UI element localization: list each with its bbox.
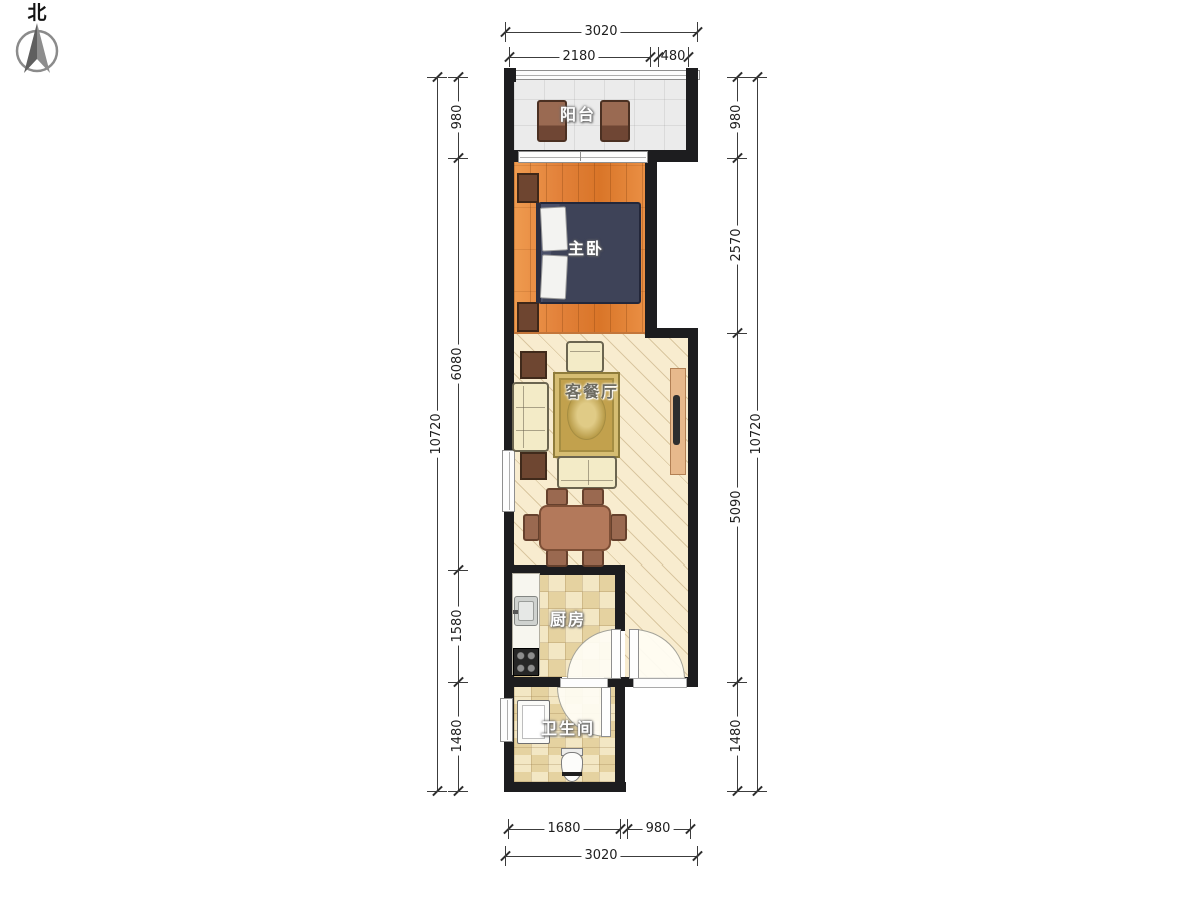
dim-right-living: 5090 bbox=[730, 487, 744, 526]
nightstand bbox=[517, 302, 539, 332]
floor-transition bbox=[514, 332, 645, 334]
wall-bedroom-right bbox=[645, 150, 657, 338]
dim-left-balcony: 980 bbox=[451, 102, 465, 133]
sofa-back-line bbox=[523, 386, 524, 448]
dim-extension bbox=[509, 47, 510, 67]
room-label-kitchen: 厨房 bbox=[550, 606, 586, 630]
tv bbox=[673, 395, 680, 445]
kitchen-sink bbox=[514, 596, 538, 626]
north-compass-icon: 北 bbox=[10, 2, 64, 80]
dining-chair bbox=[523, 514, 540, 541]
dim-left-total: 10720 bbox=[430, 410, 444, 457]
dim-extension bbox=[427, 77, 447, 78]
dim-line-right-inner bbox=[737, 77, 738, 791]
dim-extension bbox=[505, 846, 506, 866]
loveseat-back-line bbox=[561, 480, 613, 481]
dim-extension bbox=[688, 47, 689, 67]
wall-bath-top bbox=[504, 677, 562, 687]
dim-extension bbox=[448, 570, 468, 571]
dim-extension bbox=[448, 158, 468, 159]
bathroom-window bbox=[500, 698, 513, 742]
sofa bbox=[512, 382, 549, 452]
north-label: 北 bbox=[27, 2, 46, 24]
dim-extension bbox=[727, 333, 747, 334]
dim-right-bathroom: 1480 bbox=[730, 716, 744, 755]
dim-line-left-inner bbox=[458, 77, 459, 791]
dim-extension bbox=[727, 682, 747, 683]
dim-top-total: 3020 bbox=[581, 25, 620, 39]
dim-extension bbox=[448, 77, 468, 78]
dim-bottom-bath-width: 1680 bbox=[544, 822, 583, 836]
pillow bbox=[540, 206, 568, 251]
dim-bottom-entry-width: 980 bbox=[643, 822, 674, 836]
dim-extension bbox=[727, 791, 747, 792]
dim-extension bbox=[620, 819, 621, 839]
toilet-seat-band bbox=[562, 772, 582, 776]
loveseat-cushion-line bbox=[588, 460, 589, 485]
dim-extension bbox=[505, 22, 506, 42]
balcony-sliding-door bbox=[518, 151, 648, 163]
floor-plan: 北 bbox=[0, 0, 1200, 900]
sofa-cushion-line bbox=[516, 430, 545, 431]
dim-top-bedroom-width: 2180 bbox=[559, 50, 598, 64]
armchair bbox=[566, 341, 604, 373]
entry-threshold bbox=[633, 678, 687, 688]
stove bbox=[513, 648, 539, 676]
wall-kitchen-right bbox=[615, 565, 625, 631]
dining-chair bbox=[546, 488, 568, 506]
wall-bath-bottom bbox=[504, 782, 626, 792]
dining-chair bbox=[546, 549, 568, 567]
dim-extension bbox=[508, 819, 509, 839]
dim-extension bbox=[627, 819, 628, 839]
dim-extension bbox=[448, 682, 468, 683]
dining-chair bbox=[610, 514, 627, 541]
dim-extension bbox=[690, 819, 691, 839]
dining-chair bbox=[582, 488, 604, 506]
dim-extension bbox=[697, 22, 698, 42]
living-window bbox=[502, 450, 515, 512]
dim-left-kitchen: 1580 bbox=[451, 606, 465, 645]
dim-right-balcony: 980 bbox=[730, 102, 744, 133]
loveseat bbox=[557, 456, 617, 489]
balcony-chair bbox=[600, 100, 630, 142]
dim-extension bbox=[427, 791, 447, 792]
nightstand bbox=[517, 173, 539, 203]
room-label-living-dining: 客餐厅 bbox=[565, 378, 619, 402]
dim-right-bedroom: 2570 bbox=[730, 225, 744, 264]
dim-right-total: 10720 bbox=[750, 410, 764, 457]
dim-left-bedroom-living: 6080 bbox=[451, 344, 465, 383]
dim-extension bbox=[747, 77, 767, 78]
dim-extension bbox=[650, 47, 651, 67]
dim-extension bbox=[697, 846, 698, 866]
dim-left-bathroom: 1480 bbox=[451, 716, 465, 755]
room-label-balcony: 阳台 bbox=[560, 101, 596, 125]
room-label-master-bedroom: 主卧 bbox=[568, 235, 604, 259]
entry-door-leaf bbox=[629, 629, 639, 679]
dim-extension bbox=[727, 77, 747, 78]
pillow bbox=[540, 254, 568, 299]
wall-right bbox=[688, 328, 698, 687]
dim-extension bbox=[658, 47, 659, 67]
sofa-cushion-line bbox=[516, 407, 545, 408]
sliding-door-divider bbox=[580, 151, 581, 161]
kitchen-door-leaf bbox=[611, 629, 621, 679]
bathroom-door-leaf bbox=[601, 687, 611, 737]
balcony-railing bbox=[504, 70, 700, 80]
dining-chair bbox=[582, 549, 604, 567]
side-table bbox=[520, 452, 547, 480]
side-table bbox=[520, 351, 547, 379]
dining-table bbox=[539, 505, 611, 551]
dim-extension bbox=[727, 158, 747, 159]
armchair-seat-line bbox=[570, 351, 600, 352]
dim-bottom-total: 3020 bbox=[581, 849, 620, 863]
dim-extension bbox=[448, 791, 468, 792]
wall-bath-right bbox=[615, 677, 625, 792]
room-label-bathroom: 卫生间 bbox=[541, 715, 595, 739]
dim-extension bbox=[747, 791, 767, 792]
